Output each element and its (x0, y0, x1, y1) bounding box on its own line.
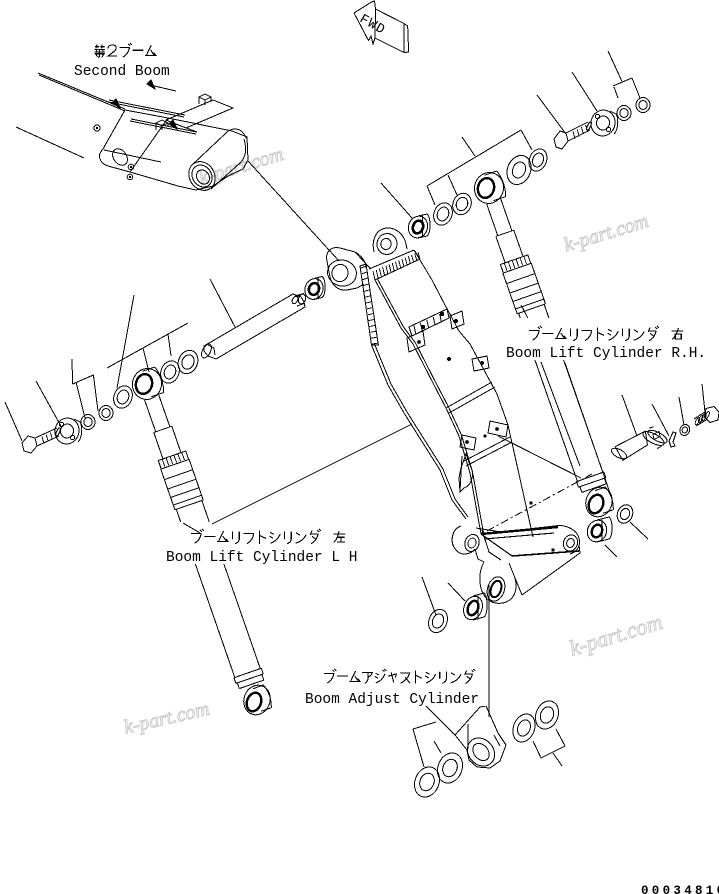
svg-text:Boom Lift Cylinder L H: Boom Lift Cylinder L H (166, 550, 357, 566)
svg-text:Second Boom: Second Boom (74, 64, 170, 80)
svg-text:Boom Adjust Cylinder: Boom Adjust Cylinder (305, 692, 479, 708)
svg-text:00034810: 00034810 (641, 884, 719, 894)
svg-text:Boom Lift Cylinder R.H.: Boom Lift Cylinder R.H. (506, 346, 706, 362)
